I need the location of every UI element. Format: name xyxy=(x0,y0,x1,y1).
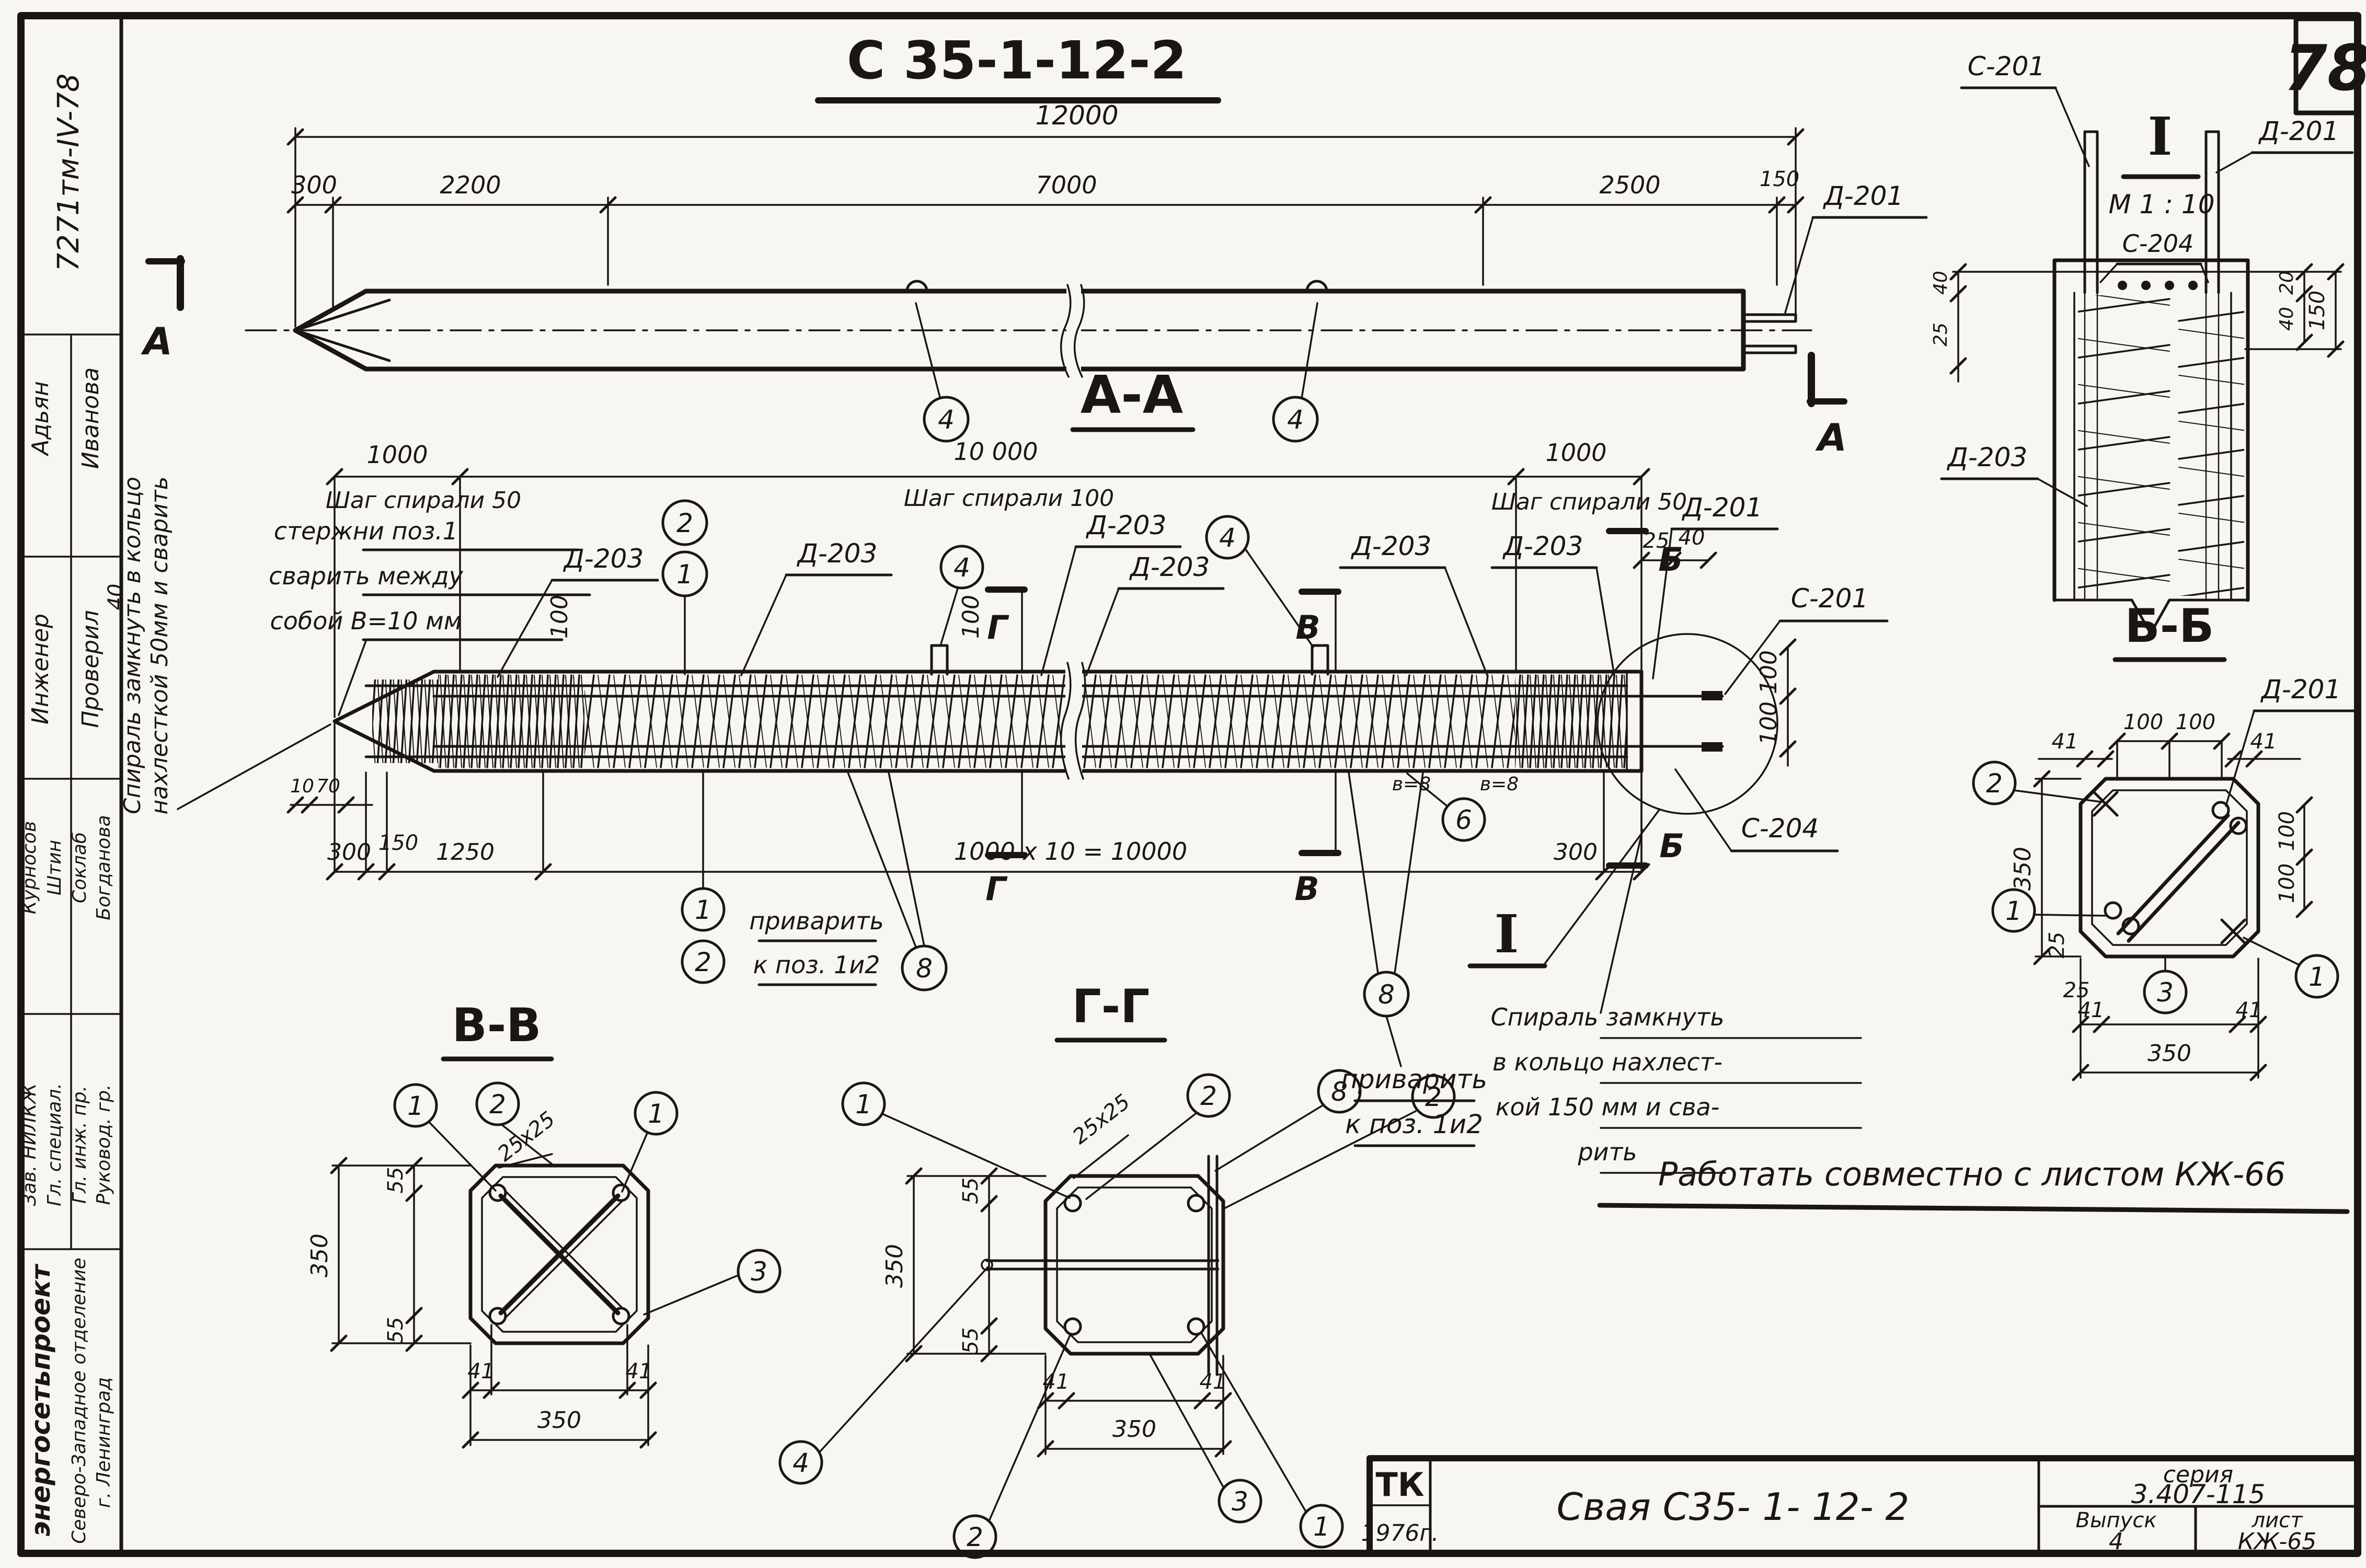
dim-70: 70 xyxy=(316,776,340,797)
dim-1000: 1000 xyxy=(1545,439,1606,467)
main-title-group: С 35-1-12-2 xyxy=(818,30,1218,100)
svg-text:4: 4 xyxy=(1219,523,1236,553)
balloon-1: 1 xyxy=(395,1085,437,1126)
note-spiral: рить xyxy=(1577,1138,1637,1166)
svg-text:2: 2 xyxy=(967,1522,983,1552)
balloon-1: 1 xyxy=(1301,1505,1342,1547)
dowel-bar xyxy=(1743,315,1796,321)
svg-text:2: 2 xyxy=(695,947,711,977)
note-spiral-left: Спираль замкнуть в кольцо xyxy=(119,477,146,814)
balloon-4: 4 xyxy=(1207,516,1248,558)
stamp-column: 7271тм-IV-78 Инженер Адьян Проверил Иван… xyxy=(19,73,121,1543)
dim-55: 55 xyxy=(384,1317,408,1344)
dim-25: 25 xyxy=(1930,322,1951,347)
dim-55: 55 xyxy=(384,1167,408,1194)
dim-10x1000: 1000 х 10 = 10000 xyxy=(954,837,1187,866)
dim-350: 350 xyxy=(2009,847,2036,891)
balloon-6: 6 xyxy=(1443,799,1485,840)
balloon-2: 2 xyxy=(1412,1076,1454,1117)
section-title-vv: В-В xyxy=(452,998,542,1052)
dim-41: 41 xyxy=(1043,1370,1070,1394)
dim-1000: 1000 xyxy=(366,441,428,469)
corner-bar xyxy=(613,1185,629,1201)
section-vv: В-В 1 2 1 3 25х25 55 55 350 41 41 350 xyxy=(306,998,780,1447)
tb-issue: 4 xyxy=(2109,1528,2123,1555)
spiral-step: Шаг спирали 50 xyxy=(326,487,521,514)
balloon-4: 4 xyxy=(924,397,968,441)
tb-tk: ТК xyxy=(1376,1466,1425,1504)
detail-i: I М 1 : 10 С-201 Д-201 С-204 Д-203 150 2… xyxy=(1930,51,2352,633)
balloon-8: 8 xyxy=(1364,972,1408,1016)
stamp-role: Гл. специал. xyxy=(44,1083,65,1206)
mark-g: Г xyxy=(985,870,1008,908)
spiral-step: Шаг спирали 100 xyxy=(904,485,1114,512)
svg-text:3: 3 xyxy=(2157,977,2174,1008)
svg-text:1: 1 xyxy=(1313,1512,1330,1542)
mark-v: В xyxy=(1294,870,1319,908)
svg-text:8: 8 xyxy=(1378,979,1395,1010)
stamp-role: Проверил xyxy=(77,610,104,728)
svg-text:2: 2 xyxy=(489,1089,506,1120)
label-s201: С-201 xyxy=(1791,583,1868,614)
blueprint-canvas: 78 7271тм-IV-78 Инженер Адьян Проверил И… xyxy=(0,0,2366,1568)
dim-100-rot: 100 xyxy=(2275,811,2299,851)
label-d203: Д-203 xyxy=(797,538,878,569)
title-block: ТК 1976г. Свая С35- 1- 12- 2 серия 3.407… xyxy=(1361,1458,2358,1555)
balloon-8: 8 xyxy=(902,946,946,990)
section-letter-a: А xyxy=(1815,416,1847,459)
dim-25: 25 xyxy=(2045,932,2069,959)
dim-7000: 7000 xyxy=(1036,171,1097,199)
dim-10000: 10 000 xyxy=(954,437,1038,466)
work-note-group: Работать совместно с листом КЖ-66 xyxy=(1600,1155,2347,1212)
dim-41: 41 xyxy=(2250,730,2277,754)
svg-text:1: 1 xyxy=(2005,896,2022,926)
note-weld: к поз. 1и2 xyxy=(753,951,880,979)
mark-g: Г xyxy=(987,608,1009,647)
pile-top-view: 12000 300 2200 7000 2500 150 Д-201 А А 4… xyxy=(141,100,1926,459)
note-spiral: кой 150 мм и сва- xyxy=(1496,1093,1720,1121)
balloon-4: 4 xyxy=(941,546,983,588)
balloon-1: 1 xyxy=(682,889,724,930)
dim-350: 350 xyxy=(306,1233,333,1277)
chamfer-label: 25х25 xyxy=(1068,1090,1134,1149)
label-d201: Д-201 xyxy=(2260,674,2341,705)
note-spiral-left: нахлесткой 50мм и сварить xyxy=(146,477,173,815)
spiral-dense xyxy=(1515,674,1627,768)
section-title-gg: Г-Г xyxy=(1072,979,1150,1033)
svg-text:4: 4 xyxy=(1287,405,1304,435)
dim-41: 41 xyxy=(1200,1370,1226,1394)
tb-year: 1976г. xyxy=(1361,1520,1439,1547)
detail-title: I xyxy=(2148,106,2173,167)
tb-drawing-name: Свая С35- 1- 12- 2 xyxy=(1557,1485,1910,1529)
balloon-2: 2 xyxy=(682,941,724,983)
dim-2500: 2500 xyxy=(1599,171,1660,199)
svg-text:8: 8 xyxy=(916,953,933,984)
dim-100-rot: 100 xyxy=(1755,650,1782,694)
corner-bar xyxy=(2231,818,2246,834)
stamp-name: Иванова xyxy=(77,367,104,469)
svg-text:1: 1 xyxy=(676,559,693,590)
tb-series: 3.407-115 xyxy=(2131,1479,2266,1509)
balloon-1: 1 xyxy=(635,1092,677,1134)
dim-300: 300 xyxy=(1554,839,1598,866)
balloon-3: 3 xyxy=(1219,1480,1261,1522)
dowel-bar xyxy=(1743,346,1796,353)
dim-40: 40 xyxy=(1930,271,1951,295)
detail-mark: I xyxy=(1495,903,1519,965)
svg-text:6: 6 xyxy=(1455,805,1472,835)
label-s204: С-204 xyxy=(1741,813,1819,844)
corner-bar xyxy=(1188,1195,1204,1211)
svg-text:1: 1 xyxy=(695,895,711,925)
note-spiral: Спираль замкнуть xyxy=(1491,1003,1725,1031)
dim-55: 55 xyxy=(959,1328,983,1354)
dim-100: 100 xyxy=(2176,710,2215,734)
spiral-sparse xyxy=(584,674,1515,768)
dim-100-rot: 100 xyxy=(958,595,984,639)
note-weld: приварить xyxy=(749,907,883,935)
spiral-dense xyxy=(438,674,584,768)
dim-2200: 2200 xyxy=(440,171,501,199)
label-d201: Д-201 xyxy=(1823,181,1904,211)
label-s204: С-204 xyxy=(2122,229,2194,258)
label-d203: Д-203 xyxy=(563,544,644,574)
dim-300: 300 xyxy=(327,839,371,866)
tb-sheet: КЖ-65 xyxy=(2238,1528,2317,1555)
note-box: собой В=10 мм xyxy=(270,607,462,635)
dim-1250: 1250 xyxy=(436,839,495,866)
balloon-3: 3 xyxy=(738,1250,780,1292)
dim-20: 20 xyxy=(2276,271,2298,295)
stamp-city: г. Ленинград xyxy=(93,1377,114,1508)
mark-b: Б xyxy=(1659,827,1684,865)
dim-10: 10 xyxy=(290,776,314,797)
dim-100-rot: 100 xyxy=(1755,701,1782,745)
balloon-1: 1 xyxy=(843,1083,885,1125)
dim-350: 350 xyxy=(537,1407,581,1434)
balloon-1: 1 xyxy=(2296,955,2338,997)
svg-text:3: 3 xyxy=(1232,1486,1248,1517)
spiral-dense xyxy=(372,679,438,763)
note-weld: к поз. 1и2 xyxy=(1345,1109,1483,1139)
stamp-role: Руковод. гр. xyxy=(93,1084,114,1205)
svg-text:1: 1 xyxy=(2308,962,2325,992)
svg-text:3: 3 xyxy=(751,1256,767,1287)
label-d203: Д-203 xyxy=(1947,442,2028,472)
balloon-2: 2 xyxy=(954,1516,996,1558)
stamp-role: Инженер xyxy=(27,614,54,724)
section-title-aa: А-А xyxy=(1081,364,1183,425)
stamp-name: Богданова xyxy=(93,815,114,920)
corner-bar xyxy=(1065,1319,1081,1334)
drawing-sheet: 78 7271тм-IV-78 Инженер Адьян Проверил И… xyxy=(0,0,2366,1568)
svg-text:2: 2 xyxy=(676,508,693,538)
detail-scale: М 1 : 10 xyxy=(2108,189,2214,220)
stamp-name: Штин xyxy=(44,840,65,895)
elevation-aa: А-А 1000 Шаг спирали 50 10 000 Шаг спира… xyxy=(104,364,1887,1173)
balloon-2: 2 xyxy=(477,1083,519,1125)
spiral-step: Шаг спирали 50 xyxy=(1491,489,1687,515)
note-spiral: в кольцо нахлест- xyxy=(1492,1048,1722,1076)
work-note: Работать совместно с листом КЖ-66 xyxy=(1658,1155,2285,1193)
svg-text:1: 1 xyxy=(855,1089,872,1120)
page-number: 78 xyxy=(2284,32,2366,105)
dim-41: 41 xyxy=(468,1359,495,1383)
dim-150: 150 xyxy=(2305,291,2329,330)
main-title: С 35-1-12-2 xyxy=(847,30,1187,91)
dim-total: 12000 xyxy=(1035,100,1118,131)
dim-41: 41 xyxy=(2052,730,2078,754)
balloon-2: 2 xyxy=(1188,1075,1230,1116)
label-d201: Д-201 xyxy=(2258,116,2339,146)
label-d203: Д-203 xyxy=(1502,531,1583,561)
label-d203: Д-203 xyxy=(1086,510,1167,540)
spiral-wrap xyxy=(2078,295,2244,596)
note-box: стержни поз.1 xyxy=(274,517,458,545)
label-d203: Д-203 xyxy=(1351,531,1432,561)
svg-text:4: 4 xyxy=(793,1448,809,1478)
stamp-role: Гл. инж. пр. xyxy=(69,1086,90,1204)
note-box: сварить между xyxy=(269,562,463,590)
section-bb: Б-Б 2 1 3 1 Д-201 100 100 41 41 100 100 … xyxy=(1973,599,2357,1080)
balloon-1: 1 xyxy=(1993,890,2035,931)
balloon-2: 2 xyxy=(1973,762,2015,804)
dim-40-rot: 40 xyxy=(104,584,128,610)
dim-100: 100 xyxy=(2123,710,2163,734)
label-s201: С-201 xyxy=(1968,51,2045,82)
pile-cross-section xyxy=(1046,1176,1223,1354)
balloon-4: 4 xyxy=(780,1442,822,1483)
svg-text:2: 2 xyxy=(1986,768,2003,799)
label-d201: Д-201 xyxy=(1682,492,1763,523)
balloon-1: 1 xyxy=(663,552,707,596)
stamp-name: Курносов xyxy=(19,821,40,914)
svg-text:2: 2 xyxy=(1425,1082,1442,1112)
dim-350: 350 xyxy=(2147,1040,2191,1067)
svg-text:8: 8 xyxy=(1331,1077,1348,1107)
label-d203: Д-203 xyxy=(1129,552,1210,582)
mark-v: В xyxy=(1295,608,1320,647)
corner-bar xyxy=(613,1308,629,1324)
section-letter-a: А xyxy=(141,319,173,363)
dim-55: 55 xyxy=(959,1178,983,1204)
svg-text:4: 4 xyxy=(938,405,955,435)
svg-text:2: 2 xyxy=(1200,1081,1217,1111)
stamp-name: Соклаб xyxy=(69,832,90,903)
section-title-bb: Б-Б xyxy=(2125,599,2214,653)
balloon-3: 3 xyxy=(2144,971,2186,1013)
dim-350: 350 xyxy=(1112,1416,1156,1443)
dim-40: 40 xyxy=(2276,307,2298,331)
doc-code: 7271тм-IV-78 xyxy=(52,73,86,271)
stamp-role: Зав. НИЛКЖ xyxy=(19,1082,40,1206)
dim-100-rot: 100 xyxy=(2275,863,2299,903)
stamp-org: энергосетьпроект xyxy=(26,1263,56,1537)
dim-150: 150 xyxy=(378,831,418,855)
weld-mark: в=8 xyxy=(1480,774,1519,795)
corner-bar xyxy=(490,1308,506,1324)
svg-text:4: 4 xyxy=(954,552,970,583)
dim-350: 350 xyxy=(881,1244,908,1288)
stamp-name: Адьян xyxy=(27,381,54,457)
svg-text:1: 1 xyxy=(648,1099,664,1129)
stamp-branch: Северо-Западное отделение xyxy=(68,1258,90,1544)
mark-b: Б xyxy=(1658,540,1683,579)
dim-300: 300 xyxy=(291,171,337,199)
balloon-2: 2 xyxy=(663,501,707,545)
dim-41: 41 xyxy=(2078,998,2105,1022)
svg-text:1: 1 xyxy=(407,1091,424,1121)
dim-100-rot: 100 xyxy=(546,595,573,639)
balloon-4: 4 xyxy=(1273,397,1317,441)
dim-150: 150 xyxy=(1760,167,1799,191)
